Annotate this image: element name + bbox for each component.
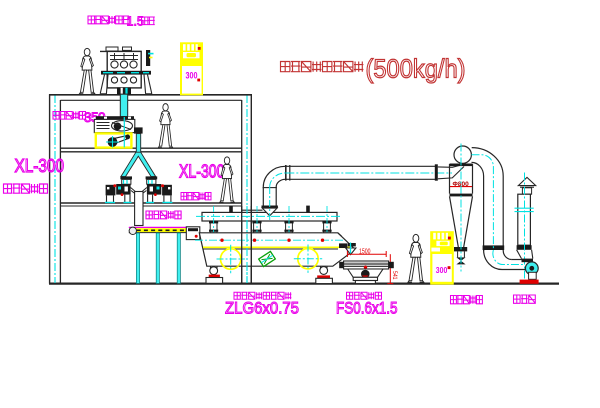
svg-text:XL-300: XL-300 bbox=[179, 161, 225, 181]
svg-text:(500kg/h): (500kg/h) bbox=[366, 54, 466, 84]
svg-text:300: 300 bbox=[186, 71, 198, 81]
svg-text:1500: 1500 bbox=[359, 249, 371, 256]
svg-text:FS0.6x1.5: FS0.6x1.5 bbox=[336, 299, 398, 318]
svg-text:ZLG6x0.75: ZLG6x0.75 bbox=[225, 299, 299, 318]
svg-text:XL-300: XL-300 bbox=[15, 156, 65, 176]
svg-text:300: 300 bbox=[436, 265, 448, 275]
svg-text:541: 541 bbox=[391, 271, 397, 280]
